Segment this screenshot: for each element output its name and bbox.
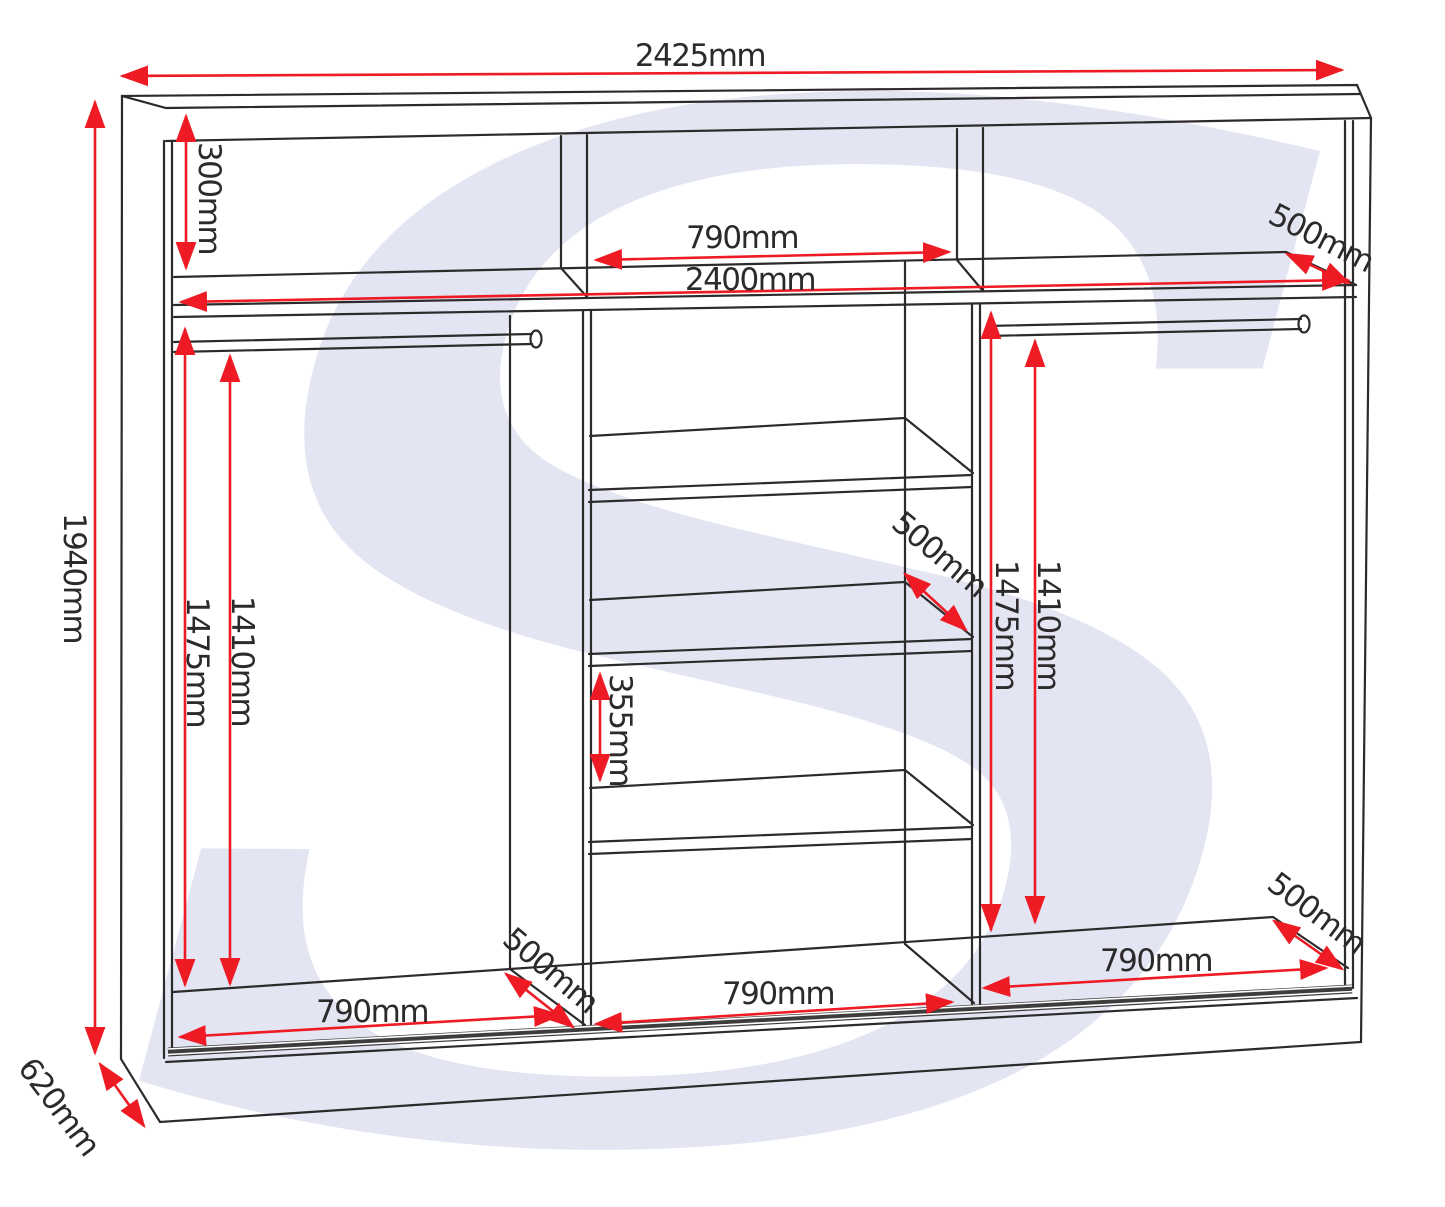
label-left-hanging-height: 1475mm (179, 597, 215, 727)
label-left-rail-height: 1410mm (224, 596, 260, 726)
wardrobe-dimension-diagram: S (0, 0, 1445, 1207)
label-left-section-width: 790mm (316, 994, 428, 1030)
label-right-rail-height: 1410mm (1030, 560, 1066, 690)
label-overall-width: 2425mm (635, 38, 765, 74)
label-shelf-spacing: 355mm (602, 674, 638, 786)
diagram-canvas: S (0, 0, 1445, 1207)
label-top-compartment-height: 300mm (191, 142, 227, 254)
label-overall-height: 1940mm (56, 513, 92, 643)
label-middle-section-width: 790mm (722, 976, 834, 1012)
label-right-hanging-height: 1475mm (988, 560, 1024, 690)
label-right-section-width: 790mm (1100, 943, 1212, 979)
label-internal-width: 2400mm (685, 262, 815, 298)
watermark-s-logo: S (83, 0, 1407, 1207)
label-top-middle-width: 790mm (686, 220, 798, 256)
